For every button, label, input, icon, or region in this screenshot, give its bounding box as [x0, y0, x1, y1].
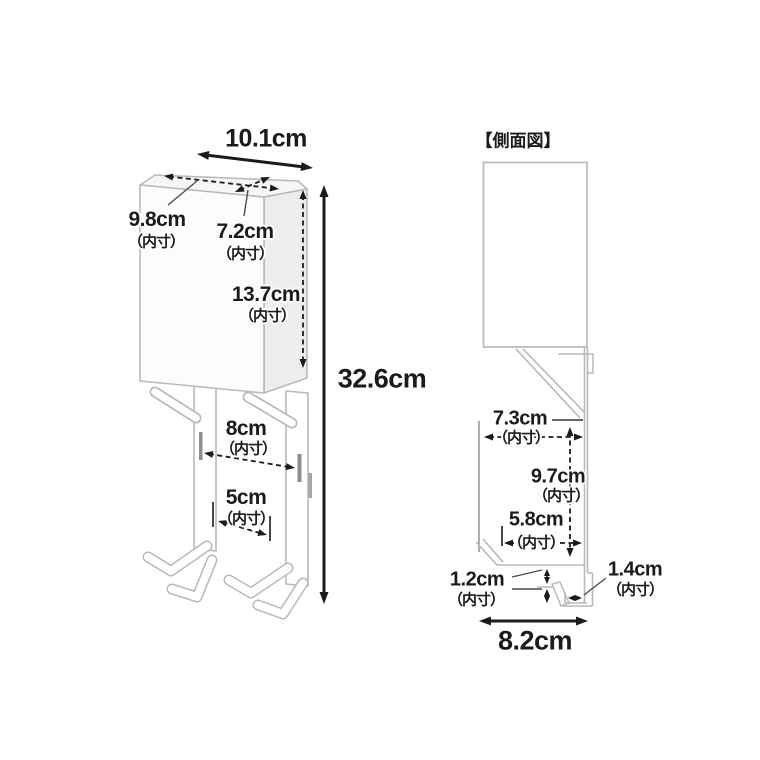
side-hook-slot-note: （内寸）: [607, 579, 663, 600]
front-inner-height-label: 13.7cm: [232, 283, 300, 307]
side-lower-depth-note: （内寸）: [508, 532, 564, 553]
front-inner-width-label: 7.2cm: [216, 220, 273, 244]
front-width-label: 10.1cm: [225, 125, 307, 154]
front-inner-depth-note: （内寸）: [128, 231, 184, 252]
front-total-height-label: 32.6cm: [338, 364, 427, 395]
front-inner-depth-label: 9.8cm: [128, 208, 185, 232]
side-lower-depth-label: 5.8cm: [509, 509, 563, 532]
side-hook-clearance-note: （内寸）: [448, 589, 504, 610]
front-hook-gap8-note: （内寸）: [220, 438, 276, 459]
dimension-diagram: 10.1cm 9.8cm （内寸） 7.2cm （内寸） 13.7cm （内寸）…: [0, 0, 760, 760]
front-hook-gap5-label: 5cm: [226, 486, 267, 510]
front-inner-width-note: （内寸）: [217, 243, 273, 264]
side-inner-height-note: （内寸）: [533, 485, 589, 506]
front-hook-gap5-note: （内寸）: [218, 508, 274, 529]
side-base-depth-label: 8.2cm: [498, 626, 572, 657]
front-inner-height-note: （内寸）: [239, 305, 295, 326]
side-inner-depth-note: （内寸）: [493, 427, 549, 448]
side-view-title: 【側面図】: [476, 127, 561, 152]
